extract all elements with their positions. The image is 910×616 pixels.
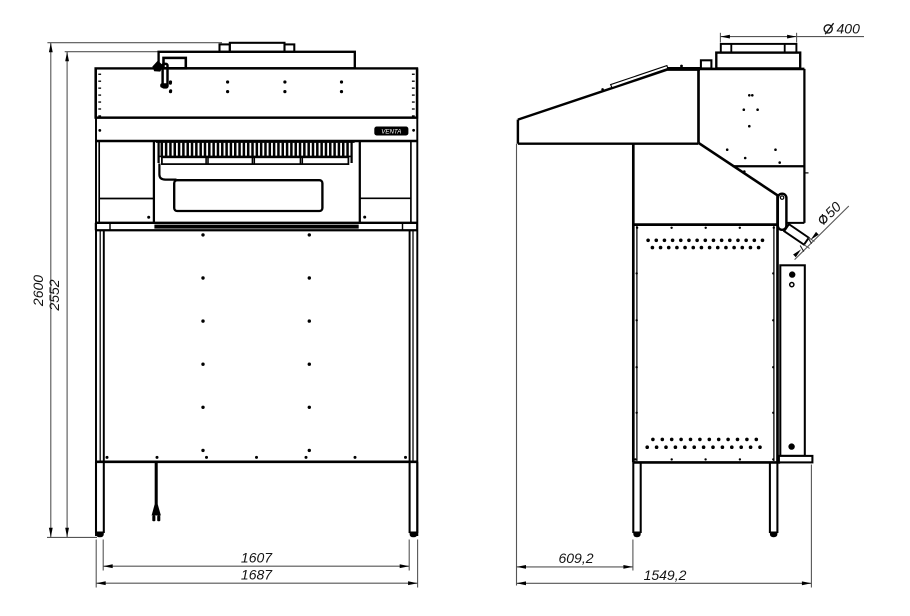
svg-text:1607: 1607	[241, 550, 273, 566]
svg-text:2552: 2552	[46, 279, 62, 311]
svg-text:1549,2: 1549,2	[644, 567, 687, 583]
svg-text:1687: 1687	[241, 567, 273, 583]
svg-text:VENTA: VENTA	[381, 129, 401, 136]
svg-text:400: 400	[837, 21, 861, 37]
svg-text:609,2: 609,2	[558, 550, 593, 566]
svg-text:2600: 2600	[30, 275, 46, 307]
